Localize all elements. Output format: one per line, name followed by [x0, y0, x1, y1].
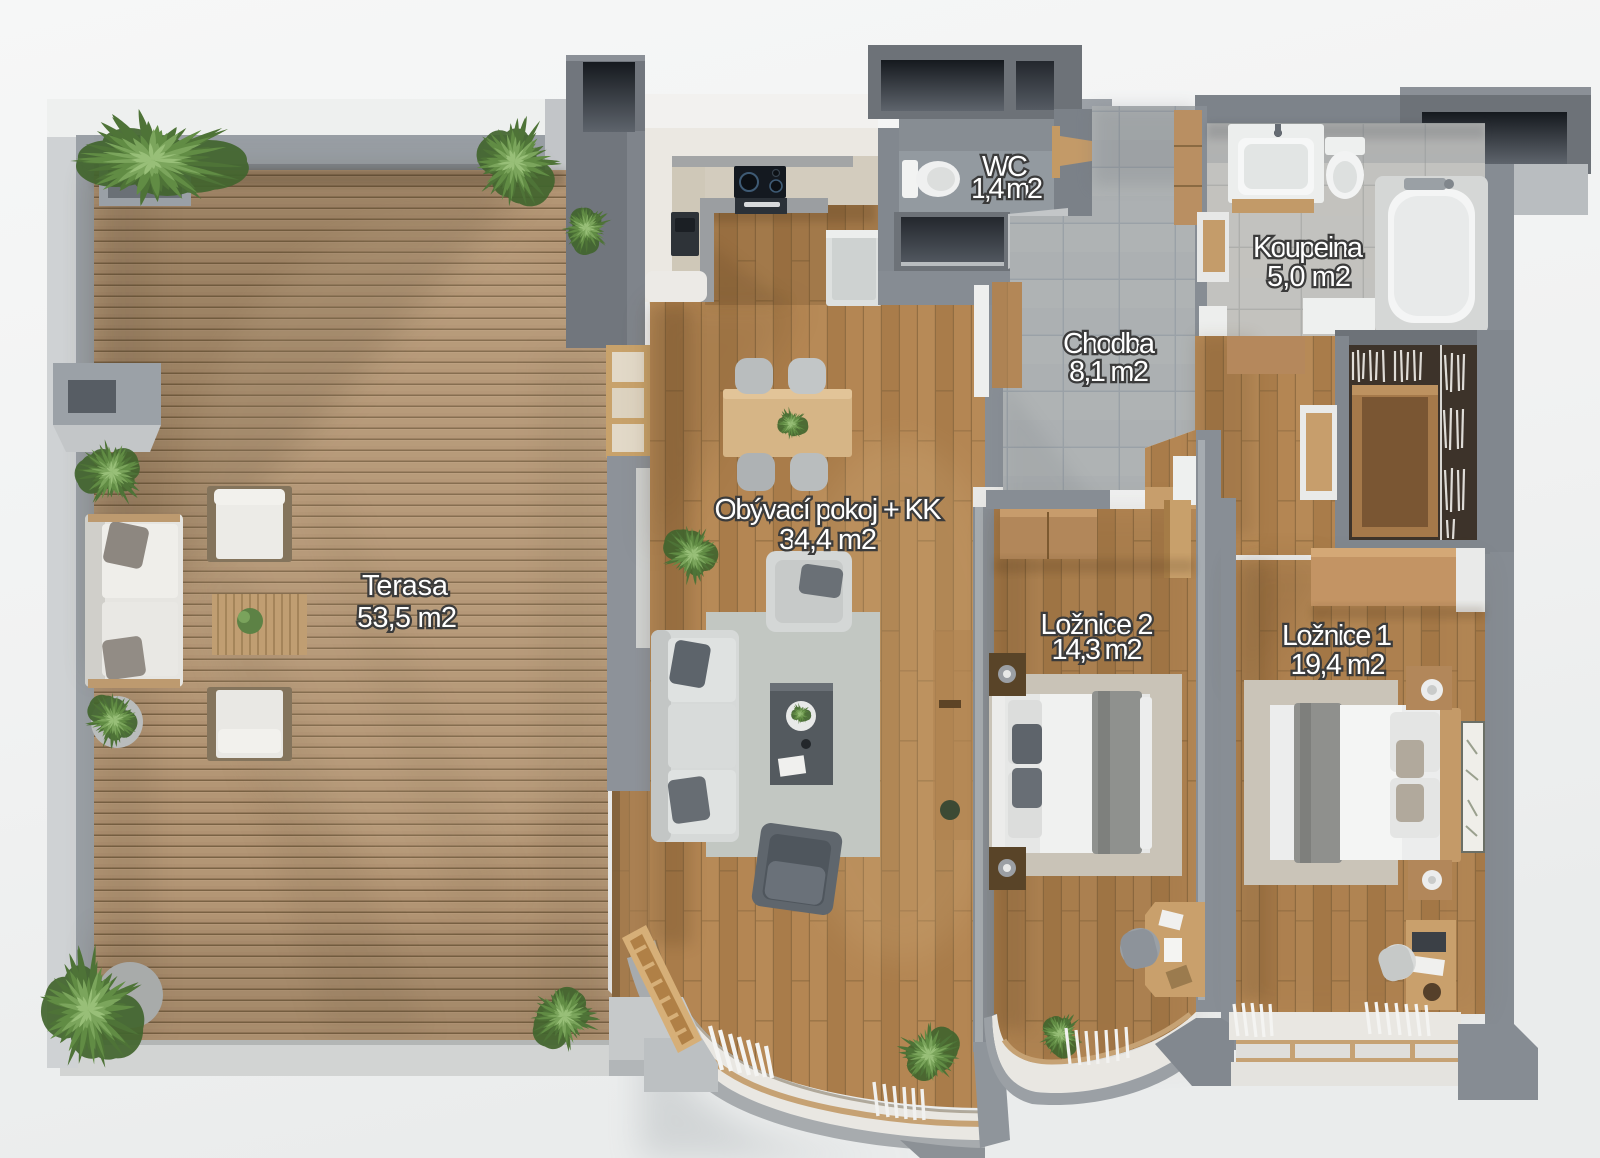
- svg-text:Terasa: Terasa: [362, 570, 449, 602]
- svg-text:Koupeina: Koupeina: [1253, 232, 1364, 264]
- svg-text:53,5 m2: 53,5 m2: [357, 602, 457, 634]
- svg-text:1,4 m2: 1,4 m2: [971, 173, 1043, 205]
- svg-text:8,1 m2: 8,1 m2: [1069, 356, 1149, 388]
- svg-text:5,0 m2: 5,0 m2: [1267, 261, 1351, 293]
- svg-text:19,4 m2: 19,4 m2: [1291, 649, 1386, 681]
- svg-text:34,4 m2: 34,4 m2: [779, 524, 877, 556]
- svg-text:Ložnice 1: Ložnice 1: [1282, 620, 1392, 652]
- svg-text:14,3 m2: 14,3 m2: [1052, 634, 1143, 666]
- svg-text:Obývací pokoj + KK: Obývací pokoj + KK: [715, 494, 943, 526]
